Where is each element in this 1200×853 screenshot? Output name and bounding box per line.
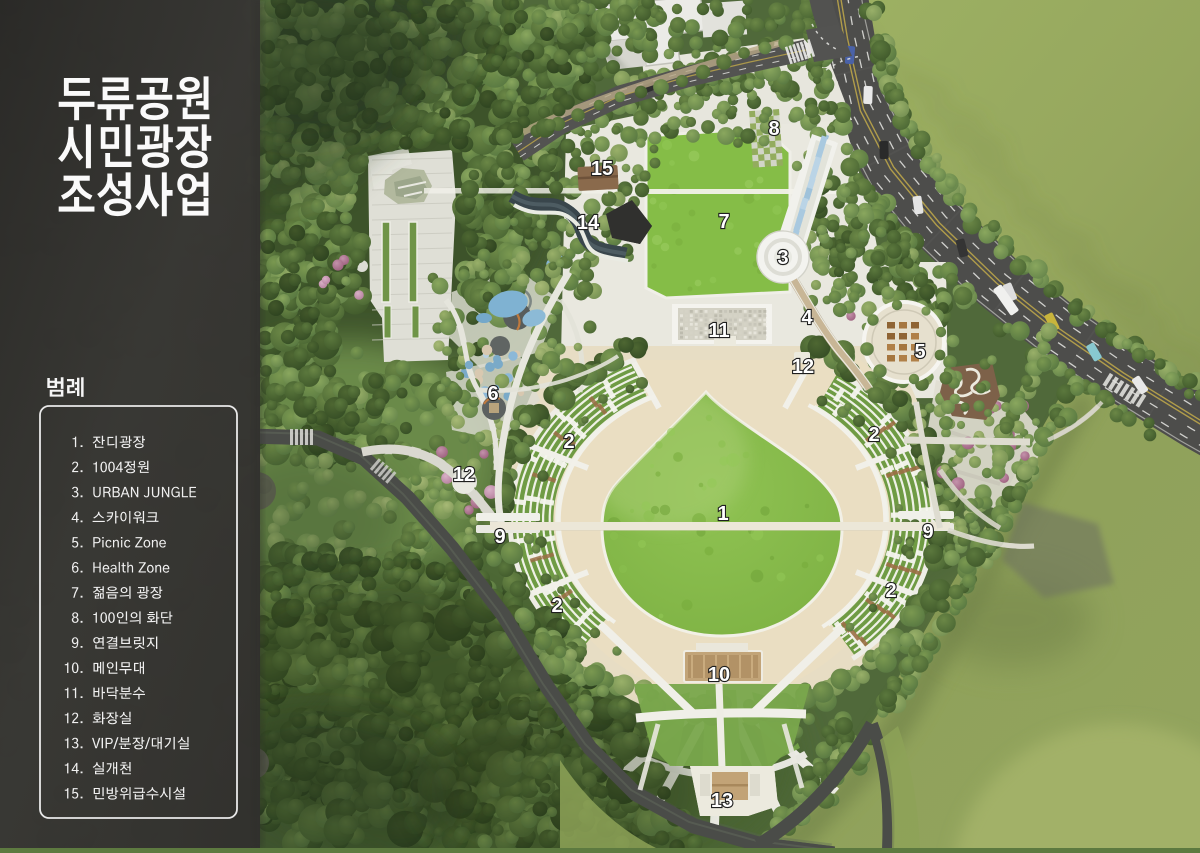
svg-text:12: 12 — [792, 356, 814, 378]
svg-text:2: 2 — [868, 424, 879, 446]
svg-text:9: 9 — [494, 526, 505, 548]
svg-text:9: 9 — [922, 521, 933, 543]
svg-text:3: 3 — [777, 247, 788, 269]
svg-text:8: 8 — [768, 118, 779, 140]
svg-text:13: 13 — [711, 790, 733, 812]
svg-text:6: 6 — [487, 383, 498, 405]
svg-text:1: 1 — [717, 503, 728, 525]
svg-text:14: 14 — [577, 212, 600, 234]
svg-text:2: 2 — [551, 595, 562, 617]
svg-text:5: 5 — [914, 341, 925, 363]
svg-text:2: 2 — [885, 580, 896, 602]
svg-text:12: 12 — [453, 464, 475, 486]
svg-text:10: 10 — [708, 664, 730, 686]
svg-text:7: 7 — [718, 211, 729, 233]
svg-text:11: 11 — [708, 320, 729, 342]
svg-text:4: 4 — [801, 307, 813, 329]
svg-text:2: 2 — [563, 431, 574, 453]
svg-text:15: 15 — [591, 158, 613, 180]
